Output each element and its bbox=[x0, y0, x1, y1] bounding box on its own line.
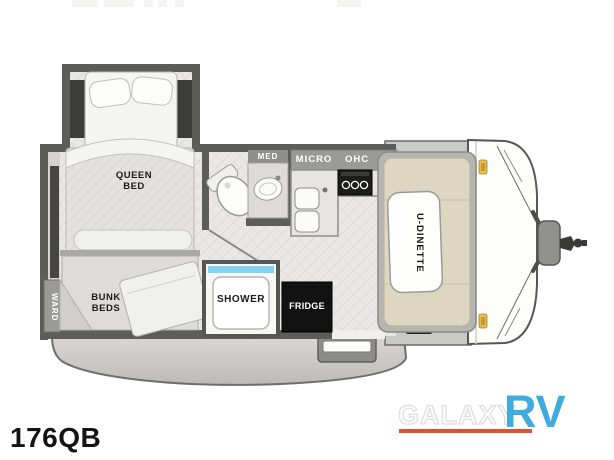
microwave-label: MICRO bbox=[292, 155, 336, 166]
bunk-beds-label: BUNKBEDS bbox=[76, 293, 136, 315]
propane-cover bbox=[538, 221, 560, 265]
coupler bbox=[560, 236, 575, 251]
hitch-assembly bbox=[533, 212, 587, 271]
u-dinette bbox=[378, 152, 476, 332]
queen-bed bbox=[66, 72, 194, 252]
pillow bbox=[131, 76, 173, 106]
pillow bbox=[88, 77, 131, 108]
fridge-label: FRIDGE bbox=[282, 301, 332, 311]
nightstand-right bbox=[177, 80, 192, 138]
shower-label: SHOWER bbox=[208, 294, 274, 306]
wardrobe-label: WARD bbox=[44, 283, 59, 331]
floorplan-model-number: 176QB bbox=[10, 422, 101, 454]
med-cabinet-label: MED bbox=[248, 152, 288, 161]
dealer-logo-rv: RV bbox=[504, 386, 566, 438]
dinette-label: U-DINETTE bbox=[406, 197, 424, 289]
dealer-logo: GALAXY RV bbox=[396, 384, 606, 448]
nightstand-left bbox=[70, 80, 85, 138]
sink bbox=[295, 188, 319, 209]
dealer-logo-wordmark: GALAXY bbox=[398, 400, 517, 431]
sink bbox=[295, 211, 319, 232]
entry-door-opening bbox=[332, 330, 385, 339]
top-crop-artifacts bbox=[72, 0, 361, 7]
rv-floorplan-page: QUEENBED BUNKBEDS WARD MED MICRO OHC SHO… bbox=[0, 0, 614, 460]
cooktop bbox=[338, 170, 372, 195]
queen-bed-label: QUEENBED bbox=[97, 171, 171, 193]
front-cap bbox=[468, 140, 537, 344]
overhead-cabinet-label: OHC bbox=[338, 155, 376, 166]
